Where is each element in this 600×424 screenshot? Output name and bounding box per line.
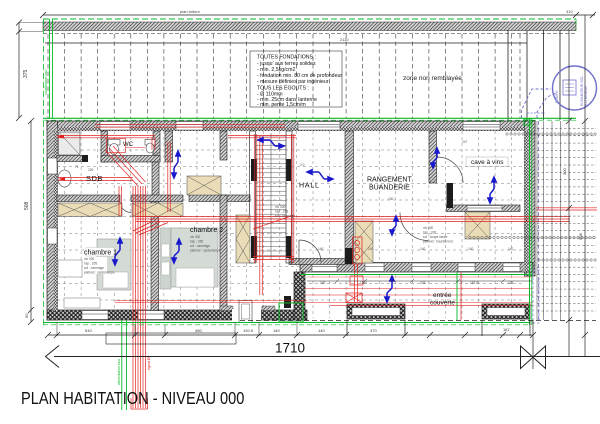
svg-text:300: 300 bbox=[562, 168, 567, 175]
svg-text:EXTERIEUR: EXTERIEUR bbox=[584, 85, 588, 106]
svg-text:RANGEMENT: RANGEMENT bbox=[367, 177, 412, 184]
svg-text:hsp : 265: hsp : 265 bbox=[275, 210, 288, 214]
svg-text:niv 000: niv 000 bbox=[190, 235, 201, 239]
svg-text:140: 140 bbox=[468, 247, 474, 251]
svg-text:sol : carrelage: sol : carrelage bbox=[190, 244, 210, 248]
svg-text:HALL: HALL bbox=[299, 183, 320, 190]
svg-text:plafond : hourdis brut: plafond : hourdis brut bbox=[423, 240, 453, 244]
svg-text:140: 140 bbox=[318, 247, 324, 251]
svg-text:canalisation eau: canalisation eau bbox=[44, 70, 48, 95]
svg-text:plafond : spots/rampe: plafond : spots/rampe bbox=[190, 249, 221, 253]
svg-text:150: 150 bbox=[320, 281, 326, 285]
svg-text:50: 50 bbox=[24, 313, 29, 318]
svg-text:140: 140 bbox=[508, 247, 514, 251]
svg-text:entrée: entrée bbox=[433, 292, 452, 299]
svg-text:TOUTES FONDATIONS :: TOUTES FONDATIONS : bbox=[257, 55, 316, 61]
svg-text:zone non remblayée: zone non remblayée bbox=[403, 75, 462, 82]
svg-text:145: 145 bbox=[420, 281, 426, 285]
svg-text:167: 167 bbox=[503, 327, 510, 332]
svg-text:TOUS LES ÉGOUTS :: TOUS LES ÉGOUTS : bbox=[257, 85, 309, 92]
svg-text:247: 247 bbox=[462, 140, 468, 144]
svg-text:71: 71 bbox=[75, 165, 79, 169]
svg-text:410: 410 bbox=[566, 9, 573, 14]
svg-text:POMPE: POMPE bbox=[555, 90, 559, 103]
svg-text:sol : chape lissée: sol : chape lissée bbox=[423, 235, 448, 239]
svg-text:508: 508 bbox=[578, 233, 583, 240]
svg-text:alimentation eau: alimentation eau bbox=[117, 359, 121, 385]
svg-text:chambre 1: chambre 1 bbox=[84, 250, 117, 257]
svg-text:hsp : 265: hsp : 265 bbox=[190, 240, 203, 244]
svg-text:niv 000: niv 000 bbox=[84, 257, 95, 261]
svg-text:- min. pente 1,5cm/m: - min. pente 1,5cm/m bbox=[257, 102, 306, 108]
svg-text:PLAN HABITATION - NIVEAU 000: PLAN HABITATION - NIVEAU 000 bbox=[21, 389, 244, 409]
svg-text:SDB: SDB bbox=[86, 174, 103, 183]
svg-text:sol : carrelage: sol : carrelage bbox=[84, 266, 104, 270]
svg-text:cave à vins: cave à vins bbox=[471, 159, 504, 166]
svg-text:WC: WC bbox=[123, 142, 134, 148]
svg-text:2110: 2110 bbox=[340, 37, 349, 42]
svg-text:375: 375 bbox=[23, 69, 29, 78]
svg-text:130: 130 bbox=[388, 197, 394, 201]
svg-text:2.0: 2.0 bbox=[300, 163, 305, 167]
svg-text:510: 510 bbox=[85, 328, 92, 333]
svg-text:hsp : 330: hsp : 330 bbox=[423, 231, 436, 235]
svg-text:plafond : spots/rampe: plafond : spots/rampe bbox=[84, 271, 115, 275]
svg-text:niv 000: niv 000 bbox=[275, 205, 286, 209]
svg-text:1490: 1490 bbox=[360, 281, 367, 285]
svg-text:couverte: couverte bbox=[430, 300, 455, 307]
svg-text:140: 140 bbox=[368, 247, 374, 251]
svg-text:145: 145 bbox=[508, 281, 514, 285]
svg-text:450: 450 bbox=[195, 328, 202, 333]
svg-text:1.07: 1.07 bbox=[152, 152, 158, 156]
svg-text:sol : carrelage: sol : carrelage bbox=[275, 214, 295, 218]
svg-text:152.5: 152.5 bbox=[470, 281, 478, 285]
svg-text:470: 470 bbox=[370, 328, 377, 333]
svg-text:140: 140 bbox=[273, 328, 280, 333]
svg-text:- mesure définies par ingénieu: - mesure définies par ingénieur bbox=[257, 79, 329, 85]
svg-text:140: 140 bbox=[318, 328, 325, 333]
svg-text:226: 226 bbox=[88, 168, 94, 172]
svg-text:plan toiture: plan toiture bbox=[180, 9, 201, 14]
svg-text:BUANDERIE: BUANDERIE bbox=[369, 185, 410, 192]
svg-text:1710: 1710 bbox=[275, 341, 305, 356]
svg-text:120.5: 120.5 bbox=[243, 328, 254, 333]
svg-text:chambre 2: chambre 2 bbox=[190, 227, 223, 234]
svg-text:hsp : 265: hsp : 265 bbox=[84, 262, 97, 266]
svg-text:508: 508 bbox=[24, 201, 30, 210]
svg-text:niv 000: niv 000 bbox=[423, 226, 434, 230]
svg-text:égout EP: égout EP bbox=[147, 355, 151, 370]
svg-text:140: 140 bbox=[420, 247, 426, 251]
